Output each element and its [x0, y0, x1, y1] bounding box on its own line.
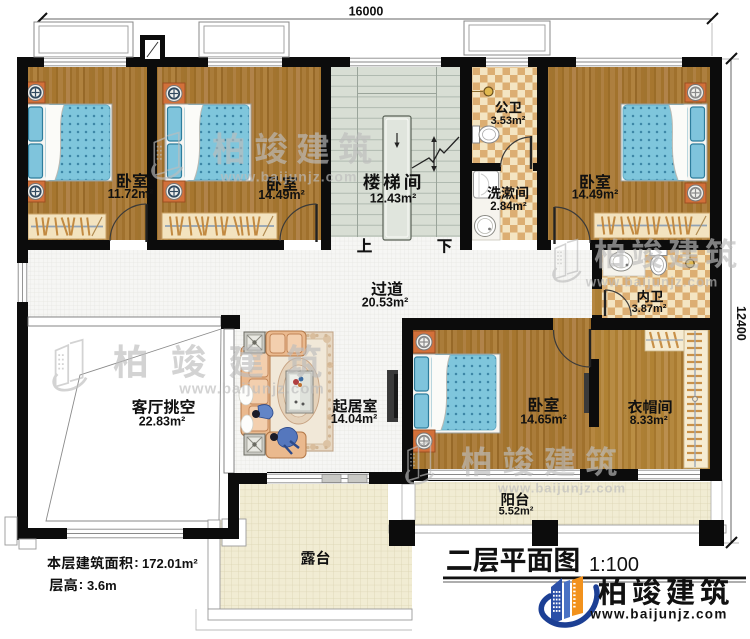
svg-text:16000: 16000 — [349, 4, 384, 18]
svg-text:8.33m²: 8.33m² — [630, 413, 668, 427]
svg-text:www.baijunjz.com: www.baijunjz.com — [220, 168, 358, 184]
svg-text:14.65m²: 14.65m² — [520, 412, 567, 426]
svg-text:2.84m²: 2.84m² — [490, 201, 527, 213]
svg-text:1:100: 1:100 — [589, 554, 639, 576]
svg-text:www.baijunjz.com: www.baijunjz.com — [178, 380, 324, 397]
svg-text:www.baijunjz.com: www.baijunjz.com — [589, 606, 727, 621]
svg-text:20.53m²: 20.53m² — [362, 295, 409, 309]
svg-text:12.43m²: 12.43m² — [370, 191, 417, 205]
svg-text:22.83m²: 22.83m² — [139, 414, 186, 428]
svg-text:3.87m²: 3.87m² — [632, 303, 667, 315]
svg-text:5.52m²: 5.52m² — [499, 505, 534, 517]
svg-text:www.baijunjz.com: www.baijunjz.com — [497, 481, 626, 496]
svg-text:11.72m²: 11.72m² — [108, 187, 154, 201]
svg-text:14.04m²: 14.04m² — [331, 412, 378, 426]
svg-text:14.49m²: 14.49m² — [572, 187, 619, 201]
svg-text:3.6m: 3.6m — [87, 578, 117, 593]
svg-text:14.49m²: 14.49m² — [258, 188, 305, 202]
svg-text:www.baijunjz.com: www.baijunjz.com — [585, 274, 719, 289]
svg-text:172.01m²: 172.01m² — [142, 556, 198, 571]
svg-text::: : — [79, 576, 84, 592]
svg-text:3.53m²: 3.53m² — [491, 115, 526, 127]
svg-text::: : — [134, 554, 139, 570]
svg-text:12400: 12400 — [734, 306, 748, 341]
